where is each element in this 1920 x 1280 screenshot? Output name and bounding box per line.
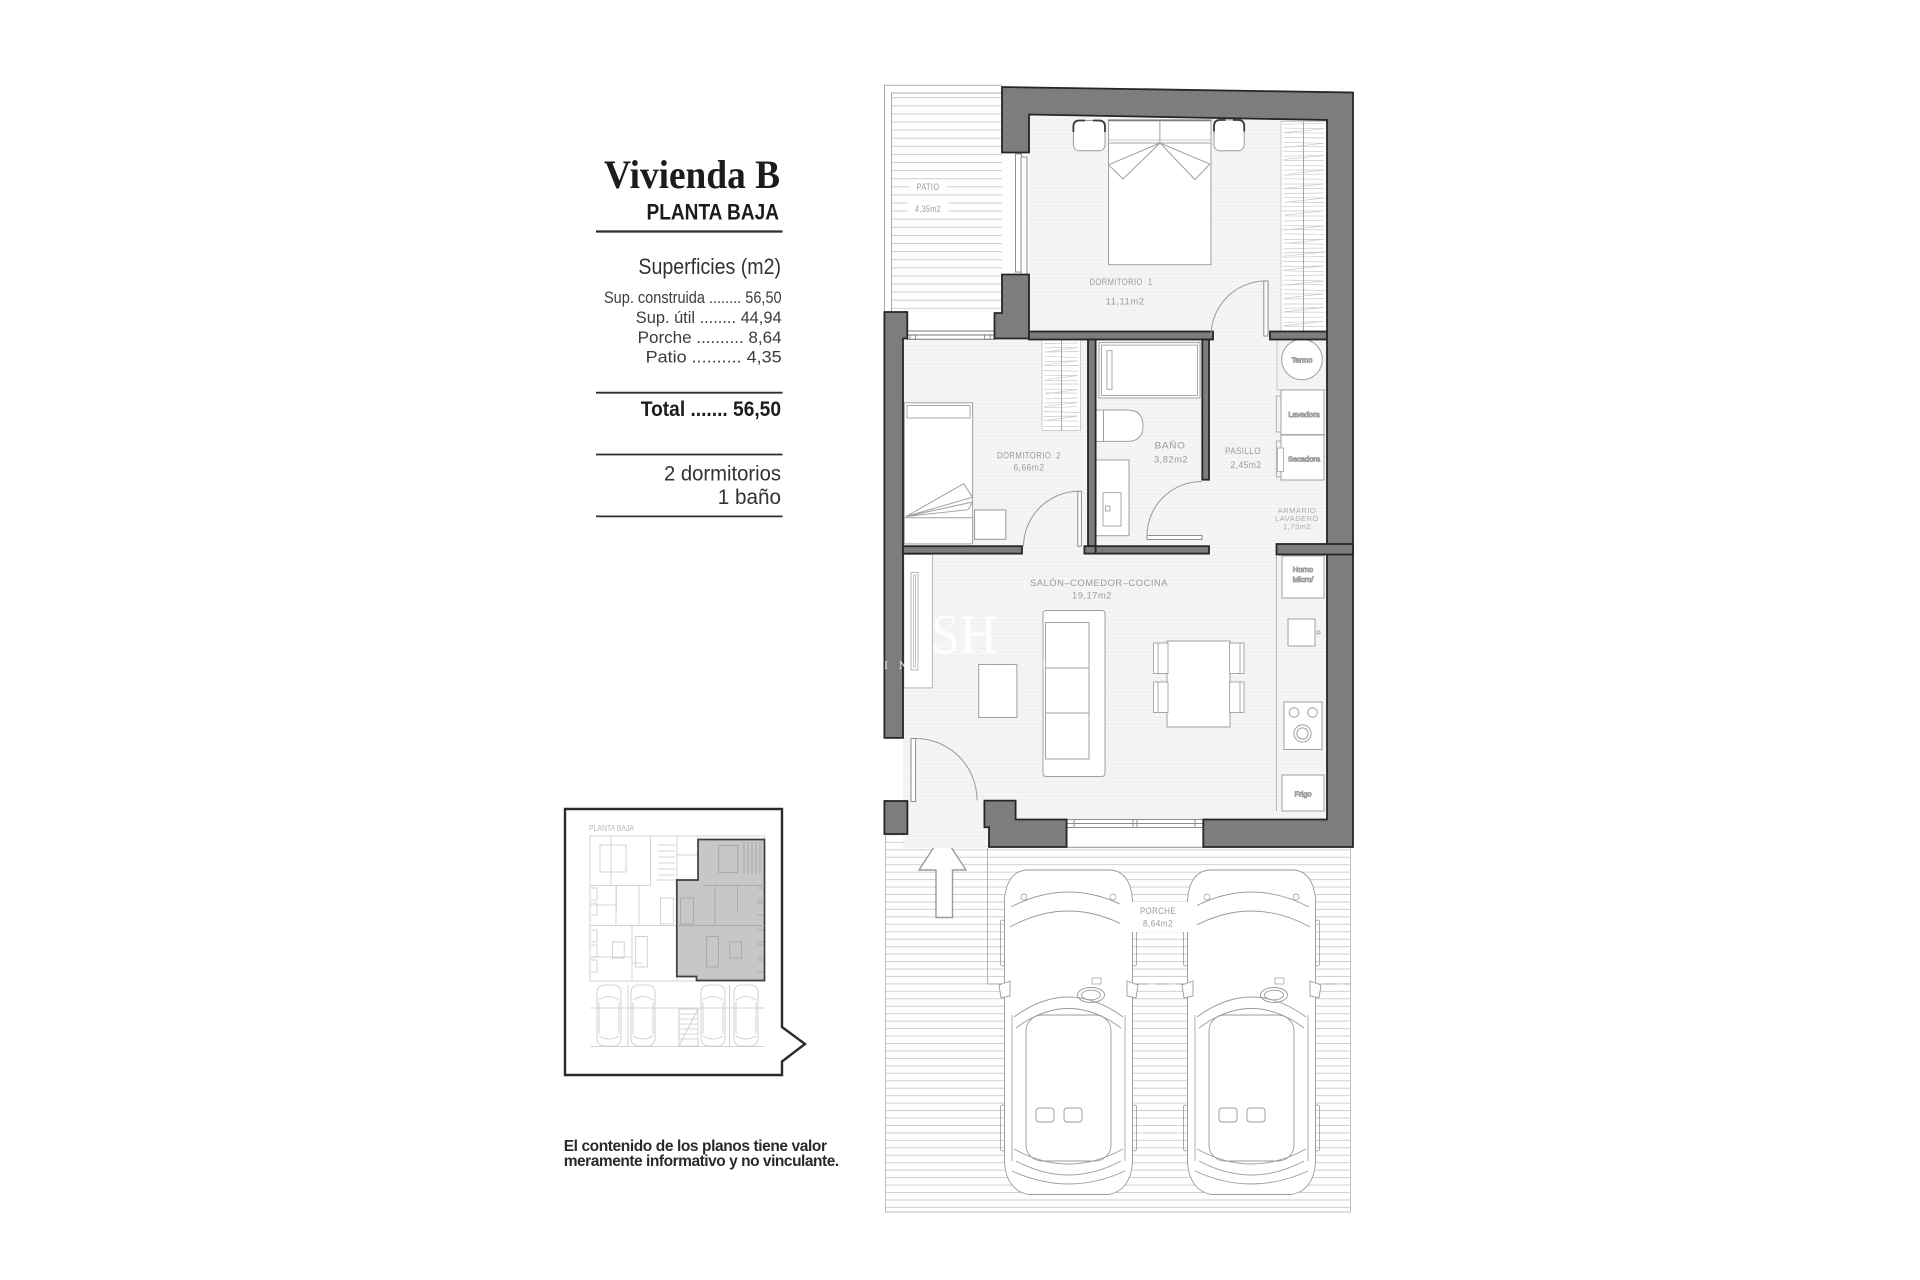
svg-text:3,82m2: 3,82m2 [1154,455,1188,466]
svg-text:4,35m2: 4,35m2 [915,204,941,215]
svg-text:1,73m2: 1,73m2 [1283,522,1311,531]
svg-text:Termo: Termo [1292,356,1313,365]
svg-text:Vivienda B: Vivienda B [604,152,780,197]
svg-text:Sup. construida ........ 56,50: Sup. construida ........ 56,50 [604,289,782,307]
svg-text:Lavadora: Lavadora [1288,410,1320,419]
svg-text:SH: SH [931,604,997,666]
svg-text:meramente informativo y no vin: meramente informativo y no vinculante. [564,1153,840,1170]
svg-text:Secadora: Secadora [1288,455,1321,464]
svg-text:Micro/: Micro/ [1293,575,1314,584]
svg-text:6,66m2: 6,66m2 [1014,463,1045,474]
svg-text:1 baño: 1 baño [718,486,781,509]
svg-text:8,64m2: 8,64m2 [1143,919,1173,930]
svg-text:M O B I L I A R I A: M O B I L I A R I A [912,660,1089,670]
svg-text:Sup. útil ........ 44,94: Sup. útil ........ 44,94 [636,309,782,327]
svg-text:Total ....... 56,50: Total ....... 56,50 [641,398,781,421]
svg-text:Patio .......... 4,35: Patio .......... 4,35 [646,348,782,366]
svg-text:Porche .......... 8,64: Porche .......... 8,64 [638,329,782,347]
svg-text:2 dormitorios: 2 dormitorios [664,463,781,486]
svg-text:PORCHE: PORCHE [1140,906,1176,917]
svg-text:DORMITORIO 2: DORMITORIO 2 [997,451,1061,462]
svg-text:11,11m2: 11,11m2 [1106,297,1145,308]
svg-text:Horno: Horno [1293,565,1313,574]
svg-text:BAÑO: BAÑO [1155,441,1186,452]
svg-text:19,17m2: 19,17m2 [1072,591,1112,602]
svg-text:PLANTA BAJA: PLANTA BAJA [647,200,780,225]
svg-text:DORMITORIO 1: DORMITORIO 1 [1090,277,1153,288]
svg-text:I N: I N [884,660,911,672]
svg-text:PASILLO: PASILLO [1225,446,1261,457]
svg-text:Superficies (m2): Superficies (m2) [638,254,781,279]
svg-text:PLANTA BAJA: PLANTA BAJA [589,824,635,833]
svg-text:Frigo: Frigo [1294,790,1311,799]
svg-text:2,45m2: 2,45m2 [1231,460,1262,471]
svg-text:PATIO: PATIO [917,182,940,193]
svg-text:SALÓN–COMEDOR–COCINA: SALÓN–COMEDOR–COCINA [1030,578,1168,589]
